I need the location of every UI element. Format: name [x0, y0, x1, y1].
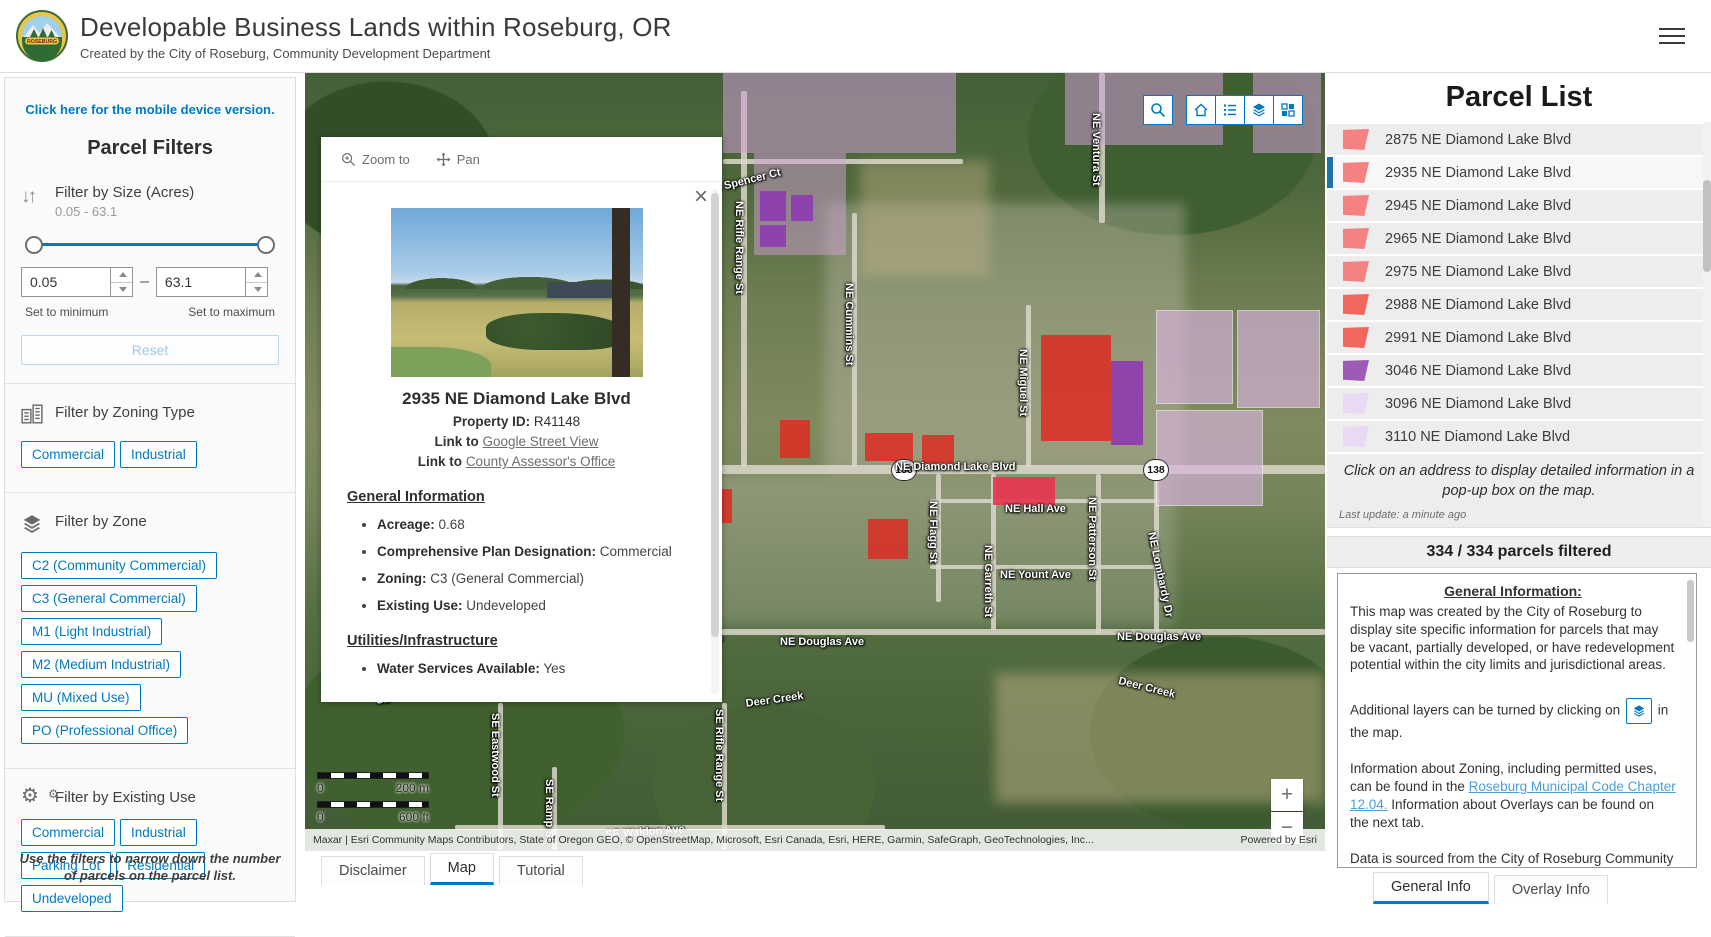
filter-button-m2-medium-industrial[interactable]: M2 (Medium Industrial): [21, 651, 181, 678]
filter-button-commercial[interactable]: Commercial: [21, 441, 115, 468]
filter-button-m1-light-industrial[interactable]: M1 (Light Industrial): [21, 618, 162, 645]
range-dash: –: [140, 273, 149, 291]
street-label: NE Douglas Ave: [1117, 631, 1201, 643]
utilities-heading: Utilities/Infrastructure: [347, 633, 686, 649]
scale-bar: 0200 m 0600 ft: [317, 772, 429, 830]
map-parcel-polygon[interactable]: [865, 433, 913, 461]
map-parcel-polygon[interactable]: [723, 73, 956, 153]
popup-attribute: Acreage: 0.68: [377, 517, 686, 532]
city-of-roseburg-seal: ROSEBURG: [16, 10, 68, 62]
size-slider[interactable]: [25, 235, 275, 253]
home-icon[interactable]: [1186, 95, 1216, 125]
buildings-icon: [21, 402, 55, 429]
menu-icon[interactable]: [1659, 28, 1685, 45]
street-label: NE Yount Ave: [1000, 569, 1071, 581]
map-toolbar: [1143, 95, 1303, 125]
map-parcel-polygon[interactable]: [868, 519, 908, 559]
attribution-text: Maxar | Esri Community Maps Contributors…: [313, 834, 1094, 846]
last-update-text: Last update: a minute ago: [1327, 505, 1711, 528]
feature-popup: Zoom to Pan × 2935 NE Diamond Lake Blvd …: [321, 137, 722, 702]
parcel-address: 2991 NE Diamond Lake Blvd: [1385, 330, 1571, 346]
set-to-maximum-caption: Set to maximum: [188, 305, 275, 319]
filter-sidebar: Click here for the mobile device version…: [4, 77, 296, 902]
info-paragraph: This map was created by the City of Rose…: [1350, 603, 1676, 675]
parcel-address: 2875 NE Diamond Lake Blvd: [1385, 132, 1571, 148]
zoning-type-buttons: CommercialIndustrial: [21, 441, 279, 474]
parcel-list-item[interactable]: 2988 NE Diamond Lake Blvd: [1327, 289, 1711, 320]
parcel-address: 3096 NE Diamond Lake Blvd: [1385, 396, 1571, 412]
popup-content: 2935 NE Diamond Lake Blvd Property ID: R…: [321, 182, 722, 703]
parcel-shape-icon: [1343, 261, 1369, 282]
popup-attribute: Zoning: C3 (General Commercial): [377, 571, 686, 586]
gears-icon: ⚙⚙: [21, 787, 55, 807]
info-panel-scrollbar[interactable]: [1686, 576, 1695, 865]
filter-button-c2-community-commercial[interactable]: C2 (Community Commercial): [21, 552, 217, 579]
street-label: NE Hall Ave: [1005, 503, 1066, 515]
zone-buttons: C2 (Community Commercial)C3 (General Com…: [21, 552, 279, 750]
street-label: Deer Creek: [745, 690, 804, 710]
map-parcel-polygon[interactable]: [1156, 310, 1233, 404]
parcel-filters-title: Parcel Filters: [21, 137, 279, 160]
parcel-address: 2945 NE Diamond Lake Blvd: [1385, 198, 1571, 214]
street-label: NE Douglas Ave: [780, 636, 864, 648]
parcel-list-title: Parcel List: [1327, 81, 1711, 114]
parcel-shape-icon: [1343, 393, 1369, 414]
zone-filter-label: Filter by Zone: [55, 511, 147, 530]
parcel-photo: [391, 208, 643, 377]
parcel-shape-icon: [1343, 426, 1369, 447]
info-paragraph: Information about Zoning, including perm…: [1350, 760, 1676, 832]
parcel-list: 2875 NE Diamond Lake Blvd2935 NE Diamond…: [1327, 124, 1711, 452]
sort-arrows-icon: ↓↑: [21, 184, 55, 208]
assessor-link-row: Link to County Assessor's Office: [347, 454, 686, 469]
slider-handle-max[interactable]: [257, 236, 275, 254]
county-assessor-link[interactable]: County Assessor's Office: [466, 454, 615, 469]
map-parcel-polygon[interactable]: [1156, 410, 1263, 506]
parcel-address: 3110 NE Diamond Lake Blvd: [1385, 429, 1570, 445]
street-label: NE Rifle Range St: [733, 201, 745, 294]
road: [700, 629, 1325, 635]
mobile-version-link[interactable]: Click here for the mobile device version…: [21, 102, 279, 117]
size-range-text: 0.05 - 63.1: [55, 204, 194, 219]
map-attribution: Maxar | Esri Community Maps Contributors…: [305, 829, 1325, 850]
info-tab-bar: General InfoOverlay Info: [1373, 872, 1613, 904]
parcel-address: 3046 NE Diamond Lake Blvd: [1385, 363, 1571, 379]
parcel-shape-icon: [1343, 327, 1369, 348]
parcel-list-item[interactable]: 3096 NE Diamond Lake Blvd: [1327, 388, 1711, 419]
tab-overlay-info[interactable]: Overlay Info: [1494, 875, 1608, 904]
filter-button-industrial[interactable]: Industrial: [120, 441, 197, 468]
street-label: NE Garreth St: [982, 545, 994, 617]
selected-indicator: [1327, 157, 1333, 188]
street-label: NE Diamond Lake Blvd: [895, 461, 1015, 473]
zoom-in-button[interactable]: +: [1271, 779, 1303, 811]
field-texture: [860, 161, 990, 276]
parcel-shape-icon: [1343, 294, 1369, 315]
map-parcel-polygon[interactable]: [993, 477, 1055, 505]
general-information-list: Acreage: 0.68Comprehensive Plan Designat…: [347, 517, 686, 613]
popup-scrollbar[interactable]: [711, 189, 719, 694]
parcel-address: 2975 NE Diamond Lake Blvd: [1385, 264, 1571, 280]
map-parcel-polygon[interactable]: [1111, 361, 1143, 445]
parcel-list-item[interactable]: 2875 NE Diamond Lake Blvd: [1327, 124, 1711, 155]
app-header: ROSEBURG Developable Business Lands with…: [0, 0, 1711, 73]
parcel-shape-icon: [1343, 195, 1369, 216]
street-label: NE Flagg St: [927, 501, 939, 563]
parcel-list-item[interactable]: 2935 NE Diamond Lake Blvd: [1327, 157, 1711, 188]
google-street-view-link[interactable]: Google Street View: [482, 434, 598, 449]
page-subtitle: Created by the City of Roseburg, Communi…: [80, 46, 672, 61]
popup-attribute: Existing Use: Undeveloped: [377, 598, 686, 613]
parcel-shape-icon: [1343, 360, 1369, 381]
tab-general-info[interactable]: General Info: [1373, 872, 1489, 904]
parcel-list-note: Click on an address to display detailed …: [1327, 454, 1711, 505]
zoom-to-button[interactable]: Zoom to: [341, 152, 410, 167]
pan-button[interactable]: Pan: [436, 152, 480, 167]
map-parcel-polygon[interactable]: [791, 195, 813, 221]
parcel-list-scrollbar[interactable]: [1703, 122, 1711, 527]
street-view-link-row: Link to Google Street View: [347, 434, 686, 449]
street-label: SE Eastwood St: [489, 713, 501, 797]
size-filter-label: Filter by Size (Acres): [55, 184, 194, 201]
street-label: NE Cummins St: [843, 283, 855, 366]
seal-text: ROSEBURG: [27, 39, 57, 45]
close-icon[interactable]: ×: [694, 187, 708, 207]
street-label: NE Ventura St: [1090, 113, 1102, 186]
popup-attribute: Water Services Available: Yes: [377, 661, 686, 676]
property-id: Property ID: R41148: [347, 414, 686, 429]
min-acres-stepper[interactable]: [110, 268, 132, 296]
parcel-address: 2988 NE Diamond Lake Blvd: [1385, 297, 1571, 313]
map-canvas[interactable]: 138138 NE Spencer CtNE Rifle Range StNE …: [305, 73, 1325, 850]
max-acres-stepper[interactable]: [245, 268, 267, 296]
powered-by-esri: Powered by Esri: [1241, 834, 1317, 846]
parcel-list-sidebar: Parcel List 2875 NE Diamond Lake Blvd293…: [1327, 73, 1711, 906]
map-parcel-polygon[interactable]: [760, 191, 786, 221]
parcel-shape-icon: [1343, 162, 1369, 183]
parcel-list-item[interactable]: 2975 NE Diamond Lake Blvd: [1327, 256, 1711, 287]
parcel-list-item[interactable]: 2965 NE Diamond Lake Blvd: [1327, 223, 1711, 254]
parcel-list-item[interactable]: 2945 NE Diamond Lake Blvd: [1327, 190, 1711, 221]
map-parcel-polygon[interactable]: [1041, 335, 1111, 441]
filters-footer-note: Use the filters to narrow down the numbe…: [19, 850, 281, 885]
slider-track: [31, 243, 269, 246]
tab-tutorial[interactable]: Tutorial: [499, 856, 583, 885]
layers-icon: [21, 511, 55, 540]
map-parcel-polygon[interactable]: [760, 225, 786, 247]
layers-toggle-icon[interactable]: [1244, 95, 1274, 125]
street-label: SE Rifle Range St: [713, 709, 725, 801]
filter-count: 334 / 334 parcels filtered: [1327, 536, 1711, 568]
info-paragraph: Data is sourced from the City of Rosebur…: [1350, 850, 1676, 868]
info-panel: General Information: This map was create…: [1337, 573, 1697, 868]
search-icon[interactable]: [1143, 95, 1173, 125]
popup-actions: Zoom to Pan: [321, 137, 722, 182]
map-parcel-polygon[interactable]: [1237, 310, 1320, 408]
parcel-list-item[interactable]: 3046 NE Diamond Lake Blvd: [1327, 355, 1711, 386]
parcel-address: 2935 NE Diamond Lake Blvd: [1385, 165, 1571, 181]
info-heading: General Information:: [1350, 582, 1676, 601]
filter-button-mu-mixed-use[interactable]: MU (Mixed Use): [21, 684, 141, 711]
filter-button-undeveloped[interactable]: Undeveloped: [21, 885, 123, 912]
map-column: 138138 NE Spencer CtNE Rifle Range StNE …: [305, 73, 1325, 906]
street-label: NE Miguel St: [1017, 349, 1029, 416]
zoning-type-filter-label: Filter by Zoning Type: [55, 402, 195, 421]
map-parcel-polygon[interactable]: [780, 420, 810, 458]
parcel-shape-icon: [1343, 228, 1369, 249]
info-paragraph: Additional layers can be turned by click…: [1350, 698, 1676, 742]
tab-disclaimer[interactable]: Disclaimer: [321, 856, 425, 885]
legend-icon[interactable]: [1215, 95, 1245, 125]
utilities-list: Water Services Available: Yes: [347, 661, 686, 676]
map-tab-bar: DisclaimerMapTutorial: [305, 850, 1325, 885]
inline-layers-icon: [1626, 698, 1652, 724]
min-acres-input[interactable]: [22, 268, 110, 296]
parcel-shape-icon: [1343, 129, 1369, 150]
slider-handle-min[interactable]: [25, 236, 43, 254]
popup-attribute: Comprehensive Plan Designation: Commerci…: [377, 544, 686, 559]
filter-button-c3-general-commercial[interactable]: C3 (General Commercial): [21, 585, 197, 612]
page-title: Developable Business Lands within Rosebu…: [80, 12, 672, 43]
max-acres-input[interactable]: [157, 268, 245, 296]
parcel-list-item[interactable]: 3110 NE Diamond Lake Blvd: [1327, 421, 1711, 452]
filter-button-commercial[interactable]: Commercial: [21, 819, 115, 846]
highway-shield: 138: [1143, 459, 1169, 481]
set-to-minimum-caption: Set to minimum: [25, 305, 108, 319]
reset-button[interactable]: Reset: [21, 335, 279, 365]
map-parcel-polygon[interactable]: [922, 435, 954, 463]
popup-parcel-address: 2935 NE Diamond Lake Blvd: [347, 389, 686, 409]
general-information-heading: General Information: [347, 489, 686, 505]
basemap-gallery-icon[interactable]: [1273, 95, 1303, 125]
existing-use-filter-label: Filter by Existing Use: [55, 787, 196, 806]
filter-button-industrial[interactable]: Industrial: [120, 819, 197, 846]
tab-map[interactable]: Map: [430, 853, 494, 885]
parcel-list-item[interactable]: 2991 NE Diamond Lake Blvd: [1327, 322, 1711, 353]
filter-button-po-professional-office[interactable]: PO (Professional Office): [21, 717, 188, 744]
street-label: NE Patterson St: [1086, 497, 1098, 580]
parcel-address: 2965 NE Diamond Lake Blvd: [1385, 231, 1571, 247]
